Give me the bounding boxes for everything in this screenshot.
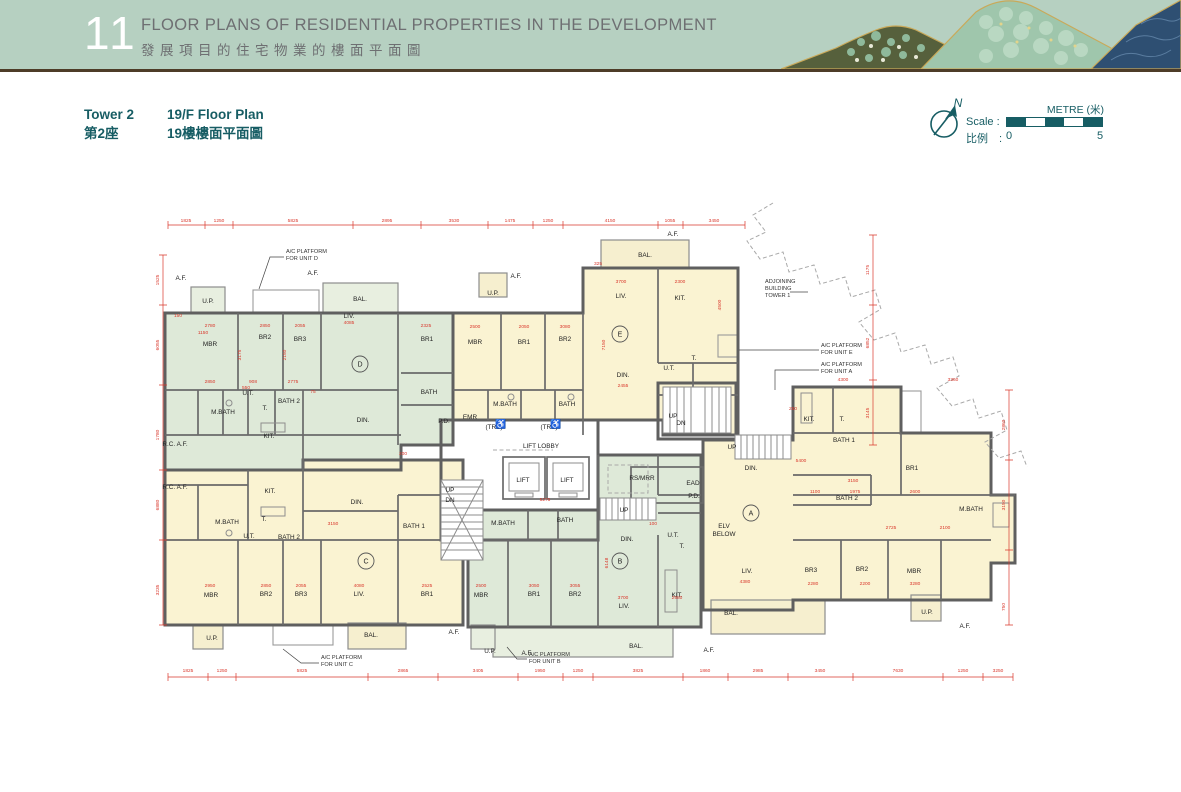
room-label: MBR: [468, 339, 483, 346]
dimension-label: 2050: [519, 324, 530, 330]
dimension-label: 2280: [808, 581, 819, 587]
room-label: U.T.: [242, 390, 254, 397]
header-landscape-art: [781, 0, 1181, 69]
dimension-label: 550: [242, 385, 250, 391]
dimension-label: 1950: [535, 668, 546, 674]
floor-plan-drawing: MBRBR2BR3LIV.BAL.U.P.M.BATHU.T.T.BATH 2K…: [153, 195, 1033, 705]
annotation-label: A/C PLATFORM: [821, 343, 862, 349]
room-label: A.F.: [175, 275, 186, 282]
room-label: BATH 2: [278, 398, 300, 405]
room-label: U.P.: [202, 298, 214, 305]
dimension-label: 1780: [155, 429, 161, 440]
room-label: BATH: [557, 517, 574, 524]
room-label: DIN.: [351, 499, 364, 506]
dimension-label: 1475: [505, 218, 516, 224]
dimension-label: 1525: [155, 274, 161, 285]
dimension-label: 3150: [1001, 499, 1007, 510]
room-label: BATH: [559, 401, 576, 408]
dimension-label: 1860: [700, 668, 711, 674]
floor-plan-label: 19/F Floor Plan 19樓樓面平面圖: [167, 105, 264, 143]
room-label: A.F.: [703, 647, 714, 654]
room-label: DIN.: [621, 536, 634, 543]
balcony-unit-a: [711, 600, 825, 634]
dimension-label: 1250: [958, 668, 969, 674]
room-label: A.F.: [959, 623, 970, 630]
north-compass: N: [926, 96, 968, 142]
dimension-label: 1055: [665, 218, 676, 224]
dimension-label: 3700: [616, 279, 627, 285]
room-label: M.BATH: [493, 401, 517, 408]
room-label: LIFT: [516, 477, 529, 484]
dimension-label: 200: [399, 451, 407, 457]
room-label: BELOW: [712, 531, 736, 538]
dimension-label: 7630: [893, 668, 904, 674]
room-label: BATH 1: [403, 523, 425, 530]
unit-a-area: [703, 387, 1015, 610]
room-label: EAD: [686, 480, 700, 487]
dimension-label: 1825: [183, 668, 194, 674]
room-label: UP: [446, 487, 455, 494]
dimension-label: 6852: [865, 337, 871, 348]
room-label: U.P.: [487, 290, 499, 297]
room-label: BR1: [421, 336, 434, 343]
room-label: U.P.: [484, 648, 496, 655]
balcony-unit-b: [493, 627, 673, 657]
annotation-label: A/C PLATFORM: [286, 249, 327, 255]
dimension-label: 4150: [605, 218, 616, 224]
dimension-label: 3250: [993, 668, 1004, 674]
dimension-label: 5825: [297, 668, 308, 674]
dimension-label: 2725: [886, 525, 897, 531]
room-label: BATH 2: [836, 495, 858, 502]
room-label: LIV.: [742, 568, 753, 575]
room-label: RS/MRR: [629, 475, 655, 482]
dimension-label: 250: [789, 406, 797, 412]
room-label: A.F.: [307, 270, 318, 277]
scale-unit-label: METRE (米): [1002, 102, 1104, 117]
room-label: M.BATH: [211, 409, 235, 416]
wheelchair-icon: ♿: [550, 418, 561, 429]
room-label: U.T.: [243, 533, 255, 540]
dimension-label: 1100: [810, 489, 821, 495]
brochure-page: 11 FLOOR PLANS OF RESIDENTIAL PROPERTIES…: [0, 0, 1181, 792]
dimension-label: 5275: [540, 497, 551, 503]
dimension-label: 1250: [543, 218, 554, 224]
dimension-label: 2860: [1001, 419, 1007, 430]
room-label: LIFT LOBBY: [523, 443, 560, 450]
dimension-label: 1975: [850, 489, 861, 495]
page-title-en: FLOOR PLANS OF RESIDENTIAL PROPERTIES IN…: [141, 16, 717, 35]
room-label: BATH 1: [833, 437, 855, 444]
tower-label-en: Tower 2: [84, 107, 134, 122]
dimension-label: 2200: [860, 581, 871, 587]
scale-label-zh: 比例 :: [966, 130, 1002, 146]
unit-e-letter: E: [618, 332, 623, 339]
room-label: KIT.: [674, 295, 685, 302]
room-label: T.: [680, 543, 685, 550]
room-label: P.D.: [438, 418, 450, 425]
room-label: A.F.: [448, 629, 459, 636]
room-label: BR1: [518, 339, 531, 346]
dimension-label: 2895: [382, 218, 393, 224]
scale-bar-graphic: [1006, 117, 1103, 127]
dimension-label: 2055: [296, 583, 307, 589]
annotation-label: A/C PLATFORM: [529, 652, 570, 658]
page-title: FLOOR PLANS OF RESIDENTIAL PROPERTIES IN…: [141, 16, 717, 59]
ac-platform-unit-a-box: [901, 391, 921, 433]
dimension-label: 2325: [421, 323, 432, 329]
dimension-label: 3235: [155, 584, 161, 595]
dimension-label: 6880: [155, 499, 161, 510]
dimension-label: 5825: [288, 218, 299, 224]
room-label: BATH: [421, 389, 438, 396]
room-label: T.: [692, 355, 697, 362]
dimension-label: 3150: [848, 478, 859, 484]
dimension-label: 150: [174, 313, 182, 319]
dimension-label: 1825: [181, 218, 192, 224]
dimension-label: 100: [649, 521, 657, 527]
room-label: BR2: [569, 591, 582, 598]
dimension-label: 4080: [354, 583, 365, 589]
dimension-label: 3175: [237, 349, 243, 360]
room-label: UP: [620, 507, 629, 514]
dimension-label: 1250: [217, 668, 228, 674]
dimension-label: 750: [1001, 603, 1007, 611]
room-label: LIV.: [616, 293, 627, 300]
dimension-label: 1250: [573, 668, 584, 674]
annotation-label: A/C PLATFORM: [821, 362, 862, 368]
room-label: M.BATH: [491, 520, 515, 527]
dimension-label: 908: [249, 379, 257, 385]
dimension-label: 2055: [295, 323, 306, 329]
room-label: MBR: [907, 568, 922, 575]
dimension-label: 3825: [633, 668, 644, 674]
dimension-label: 3080: [560, 324, 571, 330]
page-title-zh: 發展項目的住宅物業的樓面平面圖: [141, 39, 717, 59]
dimension-label: 6148: [604, 557, 610, 568]
dimension-label: 2850: [261, 583, 272, 589]
dimension-label: 2865: [398, 668, 409, 674]
tower-label: Tower 2 第2座: [84, 105, 134, 143]
dimension-label: 3450: [815, 668, 826, 674]
dimension-label: 3150: [328, 521, 339, 527]
north-label: N: [954, 96, 963, 110]
room-label: KIT.: [263, 433, 274, 440]
dimension-label: 3280: [910, 581, 921, 587]
dimension-label: 4500: [717, 299, 723, 310]
room-label: BR2: [856, 566, 869, 573]
dimension-label: 2780: [205, 323, 216, 329]
room-label: BR3: [805, 567, 818, 574]
unit-b-letter: B: [618, 559, 623, 566]
unit-d-letter: D: [357, 362, 362, 369]
room-label: DIN.: [745, 465, 758, 472]
dimension-label: 2950: [205, 583, 216, 589]
dimension-label: 1250: [214, 218, 225, 224]
annotation-label: A/C PLATFORM: [321, 655, 362, 661]
dimension-label: 1150: [198, 330, 209, 336]
room-label: LIFT: [560, 477, 573, 484]
dimension-label: 3055: [570, 583, 581, 589]
room-label: BAL.: [629, 643, 643, 650]
wheelchair-icon: ♿: [495, 418, 506, 429]
room-label: R.C. A.F.: [162, 484, 187, 491]
room-label: LIV.: [354, 591, 365, 598]
annotation-label: TOWER 1: [765, 293, 790, 299]
room-label: A.F.: [510, 273, 521, 280]
ac-platform-unit-d: [253, 290, 319, 312]
dimension-label: 3405: [473, 668, 484, 674]
dimension-label: 3450: [709, 218, 720, 224]
dimension-label: 2150: [282, 349, 288, 360]
dimension-label: 2775: [288, 379, 299, 385]
room-label: BR3: [295, 591, 308, 598]
room-label: M.BATH: [215, 519, 239, 526]
room-label: EMR: [463, 414, 478, 421]
room-label: R.C. A.F.: [162, 441, 187, 448]
room-label: U.T.: [663, 365, 675, 372]
room-label: UP: [669, 413, 678, 420]
dimension-label: 2985: [753, 668, 764, 674]
room-label: U.T.: [667, 532, 679, 539]
room-label: T.: [840, 416, 845, 423]
room-label: DIN.: [617, 372, 630, 379]
room-label: MBR: [474, 592, 489, 599]
dimension-label: 4380: [740, 579, 751, 585]
room-label: BR2: [559, 336, 572, 343]
unit-a-letter: A: [749, 511, 754, 518]
room-label: U.P.: [921, 609, 933, 616]
room-label: A.F.: [667, 231, 678, 238]
dimension-label: 2500: [470, 324, 481, 330]
page-header: 11 FLOOR PLANS OF RESIDENTIAL PROPERTIES…: [0, 0, 1181, 72]
dimension-label: 2100: [940, 525, 951, 531]
dimension-label: 3530: [449, 218, 460, 224]
room-label: MBR: [203, 341, 218, 348]
scale-bar: METRE (米) Scale : 比例 : 0 5: [966, 102, 1116, 144]
room-label: M.BATH: [959, 506, 983, 513]
dimension-label: 7150: [601, 339, 607, 350]
room-label: T.: [262, 516, 267, 523]
unit-c-letter: C: [363, 559, 368, 566]
dimension-label: 2500: [476, 583, 487, 589]
room-label: UP: [728, 444, 737, 451]
room-label: DN: [676, 420, 686, 427]
room-label: BATH 2: [278, 534, 300, 541]
dimension-label: 2455: [618, 383, 629, 389]
annotation-label: FOR UNIT D: [286, 256, 318, 262]
dimension-label: 2850: [205, 379, 216, 385]
dimension-label: 325: [594, 261, 602, 267]
scale-label-en: Scale :: [966, 116, 1000, 128]
annotation-label: FOR UNIT A: [821, 369, 853, 375]
scale-end: 5: [1097, 130, 1103, 142]
dimension-label: 4085: [344, 320, 355, 326]
room-label: BR2: [259, 334, 272, 341]
annotation-label: FOR UNIT B: [529, 659, 561, 665]
dimension-label: 1175: [865, 265, 871, 276]
room-label: BR3: [294, 336, 307, 343]
room-label: DN: [445, 497, 455, 504]
room-label: LIV.: [344, 313, 355, 320]
floor-plan-label-en: 19/F Floor Plan: [167, 107, 264, 122]
room-label: BAL.: [638, 252, 652, 259]
room-label: BR1: [906, 465, 919, 472]
room-label: BR2: [260, 591, 273, 598]
tower-label-zh: 第2座: [84, 126, 119, 141]
dimension-label: 75: [310, 389, 316, 395]
utility-platform-unit-b: [471, 625, 495, 649]
room-label: LIV.: [619, 603, 630, 610]
dimension-label: 4300: [838, 377, 849, 383]
room-label: BR1: [421, 591, 434, 598]
section-number: 11: [84, 6, 138, 60]
room-label: MBR: [204, 592, 219, 599]
dimension-label: 2600: [910, 489, 921, 495]
dimension-label: 5400: [796, 458, 807, 464]
room-label: KIT.: [264, 488, 275, 495]
annotation-label: BUILDING: [765, 286, 791, 292]
room-label: BAL.: [353, 296, 367, 303]
dimension-label: 2300: [675, 279, 686, 285]
room-label: KIT.: [803, 416, 814, 423]
annotation-label: FOR UNIT C: [321, 662, 353, 668]
room-label: BR1: [528, 591, 541, 598]
room-label: BAL.: [724, 610, 738, 617]
dimension-label: 3700: [618, 595, 629, 601]
ac-platform-unit-c: [273, 625, 333, 645]
room-label: ELV: [718, 523, 730, 530]
dimension-label: 3050: [529, 583, 540, 589]
room-label: BAL.: [364, 632, 378, 639]
dimension-label: 3145: [865, 407, 871, 418]
floor-plan-label-zh: 19樓樓面平面圖: [167, 126, 263, 141]
scale-start: 0: [1006, 130, 1012, 142]
dimension-label: 2980: [672, 595, 683, 601]
annotation-label: FOR UNIT E: [821, 350, 853, 356]
dimension-label: 2850: [260, 323, 271, 329]
room-label: P.D.: [688, 493, 700, 500]
annotation-label: ADJOINING: [765, 279, 795, 285]
dimension-label: 2525: [422, 583, 433, 589]
room-label: U.P.: [206, 635, 218, 642]
dimension-label: 6055: [155, 339, 161, 350]
room-label: T.: [263, 405, 268, 412]
room-label: DIN.: [357, 417, 370, 424]
dimension-label: 3360: [948, 377, 959, 383]
